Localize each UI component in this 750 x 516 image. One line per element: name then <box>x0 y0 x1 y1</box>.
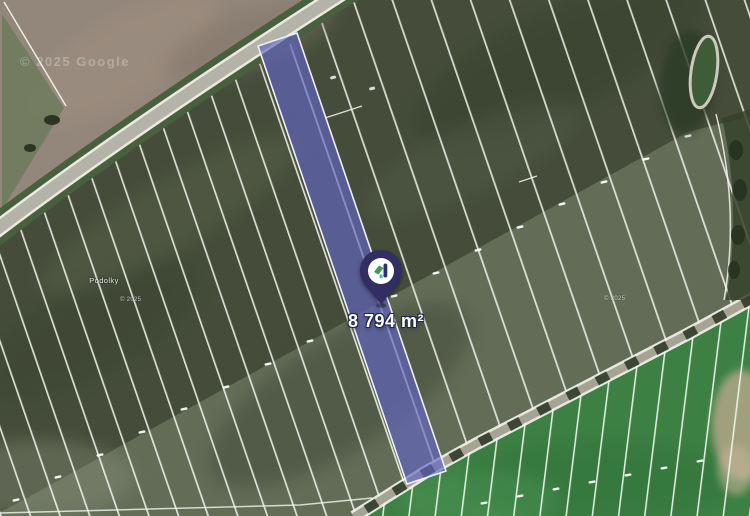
pin-marker-icon <box>355 247 407 309</box>
satellite-map[interactable]: © 2025 Google Podolky © 2025 © 2025 8 79… <box>0 0 750 516</box>
location-pin[interactable] <box>355 247 407 309</box>
